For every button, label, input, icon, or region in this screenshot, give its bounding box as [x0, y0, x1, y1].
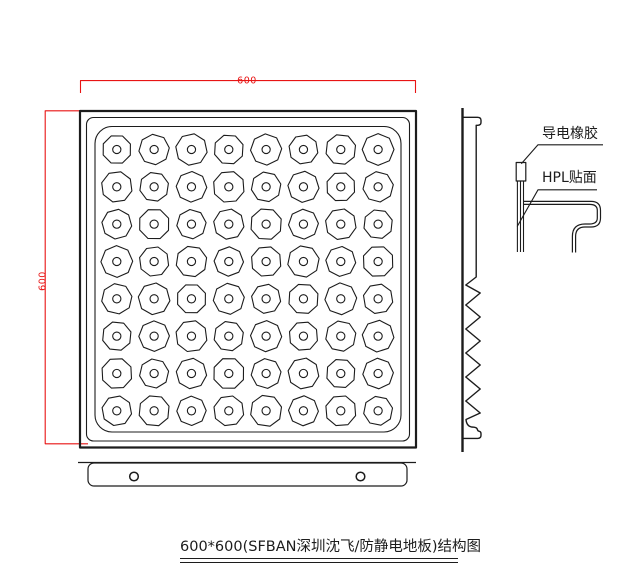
dimple-octagon: [252, 247, 281, 276]
dimple-octagon: [251, 172, 280, 202]
dimple-octagon: [289, 209, 319, 239]
dimple-octagon: [176, 172, 207, 203]
top-view-panel: [80, 111, 416, 448]
dimple-octagon: [213, 283, 244, 314]
dimple-octagon: [177, 396, 206, 425]
dimple-octagon: [289, 284, 318, 313]
dimple-octagon: [103, 322, 131, 350]
dimple-octagon: [364, 210, 392, 238]
dimple-octagon: [102, 284, 132, 314]
dimple-octagon: [176, 246, 206, 276]
dimple-octagon: [288, 358, 319, 389]
dimple-octagon: [251, 134, 282, 165]
dimple-octagon: [252, 284, 281, 313]
dimple-octagon: [327, 360, 355, 388]
dimple-octagon: [176, 358, 206, 388]
dimple-octagon: [362, 320, 394, 352]
dimple-octagon: [102, 396, 131, 425]
dimple-octagon: [364, 284, 393, 313]
dimple-octagon: [363, 172, 393, 202]
dimple-octagon: [177, 210, 206, 239]
dimple-octagon: [176, 321, 207, 352]
dimple-octagon: [176, 134, 207, 165]
dimple-octagon: [215, 135, 243, 163]
dimple-octagon: [326, 321, 356, 351]
dimple-octagon: [102, 209, 132, 239]
dimple-octagon: [214, 396, 244, 426]
dimple-octagon: [102, 172, 132, 202]
dimple-octagon: [289, 135, 318, 164]
dimple-octagon: [326, 209, 356, 239]
dimple-octagon: [214, 359, 244, 389]
mount-hole: [130, 472, 139, 481]
dimple-octagon: [102, 359, 131, 388]
dimple-octagon: [364, 247, 393, 276]
drawing-linework: [0, 0, 632, 581]
dimple-octagon: [140, 210, 169, 239]
dimple-octagon: [214, 322, 243, 351]
top-dimension-label: 600: [237, 76, 257, 86]
structural-drawing-page: 600 600 导电橡胶 HPL贴面 600*600(SFBAN深圳沈飞/防静电…: [0, 0, 632, 581]
hpl-face-label: HPL贴面: [542, 171, 597, 186]
dimple-octagon: [325, 283, 357, 315]
dimple-octagon: [364, 396, 393, 425]
dimple-octagon: [363, 358, 394, 389]
left-dimension-label: 600: [38, 271, 48, 291]
dimple-octagon: [326, 135, 355, 164]
conductive-rubber-label: 导电橡胶: [542, 127, 598, 142]
dimple-octagon: [214, 209, 244, 239]
dimple-octagon: [362, 134, 394, 166]
dimple-octagon: [214, 247, 243, 276]
dimple-octagon: [101, 246, 133, 278]
dimple-octagon: [103, 136, 130, 163]
mount-hole: [356, 472, 365, 481]
dimple-octagon: [138, 283, 170, 315]
dimple-octagon: [290, 322, 318, 350]
dimple-octagon: [140, 247, 169, 276]
dimple-octagon: [326, 396, 356, 426]
dimple-octagon: [139, 396, 169, 426]
dimple-octagon: [139, 134, 169, 164]
conductive-rubber-strip: [516, 163, 526, 182]
dimple-octagon: [251, 395, 282, 426]
drawing-caption: 600*600(SFBAN深圳沈飞/防静电地板)结构图: [180, 539, 458, 556]
dimple-octagon: [327, 173, 354, 201]
dimple-octagon: [251, 359, 281, 389]
dimple-grid: [101, 134, 394, 427]
dimple-octagon: [140, 173, 169, 202]
dimple-octagon: [326, 247, 356, 277]
dimple-octagon: [178, 285, 206, 313]
conductive-rubber-leader: [521, 145, 603, 164]
dimple-octagon: [140, 359, 169, 388]
dimple-octagon: [288, 246, 319, 277]
dimple-octagon: [251, 209, 281, 239]
dimple-octagon: [214, 172, 244, 202]
dimple-octagon: [289, 396, 319, 426]
hpl-face-leader: [517, 190, 597, 227]
dimple-octagon: [139, 321, 170, 352]
front-edge-view: [78, 463, 416, 487]
dimple-octagon: [288, 171, 319, 202]
side-profile-view: [463, 108, 482, 452]
caption-underline: [180, 558, 458, 563]
dimple-octagon: [251, 321, 282, 352]
